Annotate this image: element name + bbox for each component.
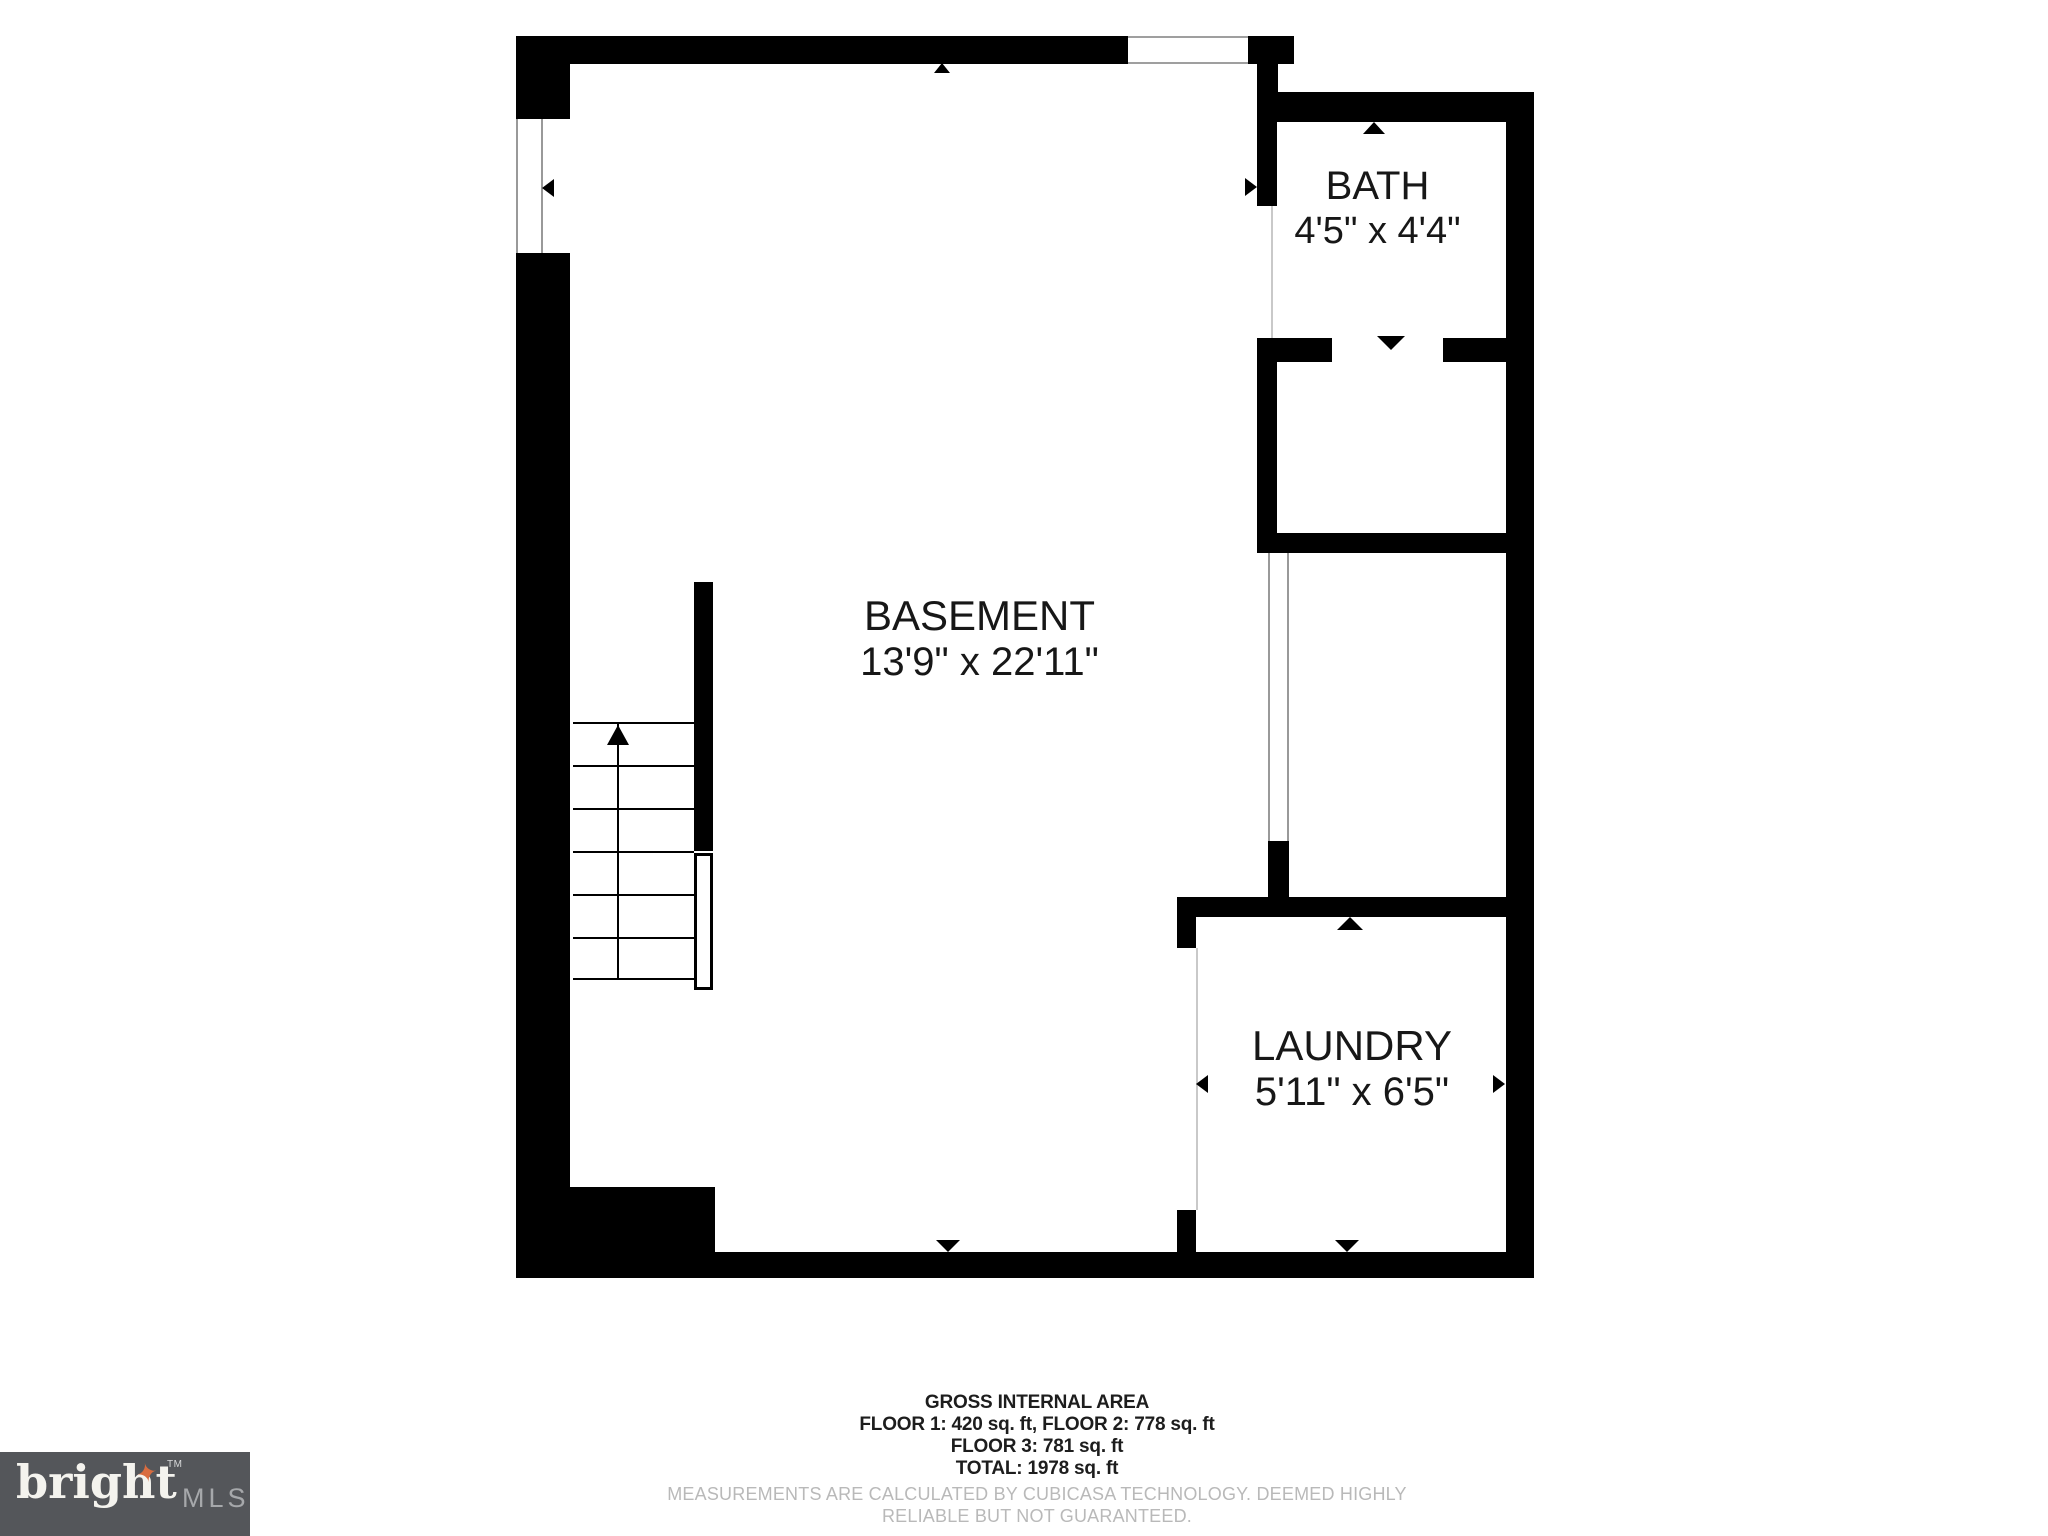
- wall-step-connector: [1257, 64, 1278, 94]
- footer-title: GROSS INTERNAL AREA: [624, 1392, 1450, 1414]
- bath-top-wall: [1257, 92, 1534, 122]
- open-wall-stub: [1268, 841, 1289, 897]
- outer-wall-bottom: [516, 1252, 1534, 1278]
- stair-railing: [694, 853, 713, 990]
- outer-wall-right: [1506, 122, 1534, 1277]
- stair-step-line: [573, 722, 694, 724]
- arrow-left-icon: [542, 179, 554, 197]
- bright-mls-logo: bright ✦ TM MLS: [0, 1452, 250, 1536]
- arrow-down-icon: [1335, 1240, 1359, 1252]
- stair-step-line: [573, 894, 694, 896]
- stair-step-line: [573, 808, 694, 810]
- stairs-up-arrow-icon: [607, 725, 629, 745]
- logo-trademark: TM: [167, 1459, 182, 1470]
- laundry-left-stub-top: [1177, 917, 1196, 948]
- arrow-up-icon: [1363, 122, 1385, 134]
- laundry-left-stub-bottom: [1177, 1210, 1196, 1252]
- outer-wall-left-top: [516, 36, 570, 119]
- room-dimensions: 13'9" x 22'11": [657, 639, 1302, 685]
- top-wall-opening: [1128, 36, 1248, 64]
- room-label-laundry: LAUNDRY 5'11" x 6'5": [1196, 1022, 1508, 1115]
- logo-suffix-text: MLS: [182, 1483, 250, 1514]
- arrow-down-icon: [1377, 336, 1405, 350]
- room-name: LAUNDRY: [1196, 1022, 1508, 1069]
- room-name: BATH: [1270, 164, 1485, 209]
- footer-areas-line1: FLOOR 1: 420 sq. ft, FLOOR 2: 778 sq. ft: [624, 1414, 1450, 1436]
- bottom-left-wall-block: [570, 1187, 715, 1252]
- bath-bottom-wall-left: [1257, 338, 1332, 362]
- floorplan-page: BASEMENT 13'9" x 22'11" BATH 4'5" x 4'4"…: [0, 0, 2048, 1536]
- footer-disclaimer: MEASUREMENTS ARE CALCULATED BY CUBICASA …: [624, 1483, 1450, 1527]
- room-dimensions: 5'11" x 6'5": [1196, 1069, 1508, 1115]
- arrow-up-icon: [934, 63, 950, 73]
- left-wall-window: [516, 119, 543, 253]
- room-label-bath: BATH 4'5" x 4'4": [1270, 164, 1485, 253]
- outer-wall-left-bottom: [516, 253, 570, 1277]
- outer-wall-top: [516, 36, 1128, 64]
- stair-step-line: [573, 978, 694, 980]
- room-dimensions: 4'5" x 4'4": [1270, 209, 1485, 253]
- footer-total-line: TOTAL: 1978 sq. ft: [624, 1458, 1450, 1480]
- stair-step-line: [573, 851, 694, 853]
- stair-step-line: [573, 765, 694, 767]
- room-name: BASEMENT: [657, 592, 1302, 639]
- stair-step-line: [573, 937, 694, 939]
- bath-bottom-wall-right: [1443, 338, 1506, 362]
- arrow-right-icon: [1245, 178, 1257, 196]
- stair-direction-shaft: [617, 722, 619, 980]
- laundry-top-wall: [1177, 897, 1506, 917]
- footer-areas-line2: FLOOR 3: 781 sq. ft: [624, 1436, 1450, 1458]
- gross-internal-area-summary: GROSS INTERNAL AREA FLOOR 1: 420 sq. ft,…: [624, 1392, 1450, 1527]
- closet-bottom-wall: [1257, 533, 1506, 553]
- room-label-basement: BASEMENT 13'9" x 22'11": [657, 592, 1302, 685]
- outer-wall-top-stub: [1248, 36, 1294, 64]
- closet-left-wall: [1257, 362, 1277, 533]
- arrow-down-icon: [936, 1240, 960, 1252]
- arrow-up-icon: [1337, 917, 1363, 930]
- staircase: [573, 722, 694, 980]
